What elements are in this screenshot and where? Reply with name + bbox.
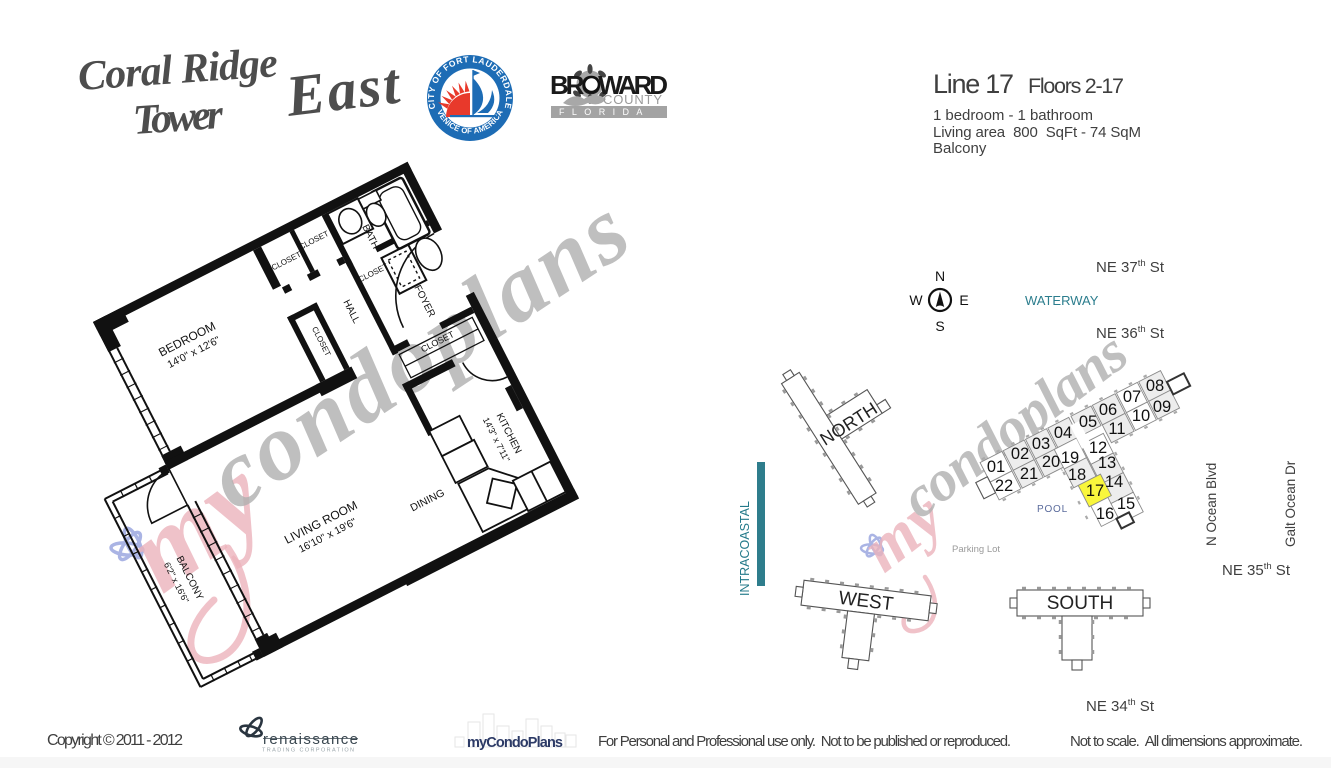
- svg-text:02: 02: [1011, 445, 1029, 463]
- svg-text:FLORIDA: FLORIDA: [559, 107, 650, 117]
- svg-text:TRADING CORPORATION: TRADING CORPORATION: [262, 748, 355, 754]
- svg-text:22: 22: [995, 477, 1013, 495]
- svg-text:myCondoPlans: myCondoPlans: [467, 735, 563, 751]
- svg-text:INTRACOASTAL: INTRACOASTAL: [738, 501, 752, 596]
- svg-text:20: 20: [1042, 453, 1060, 471]
- svg-text:07: 07: [1123, 388, 1141, 406]
- svg-text:Tower: Tower: [131, 92, 225, 144]
- svg-text:NE 34th St: NE 34th St: [1086, 697, 1155, 715]
- svg-text:1 bedroom - 1 bathroom: 1 bedroom - 1 bathroom: [933, 107, 1093, 124]
- svg-text:NE 36th St: NE 36th St: [1096, 324, 1165, 342]
- svg-text:Not to scale. All dimensions: Not to scale. All dimensions approximate…: [1070, 733, 1303, 750]
- svg-text:08: 08: [1146, 377, 1164, 395]
- svg-text:N Ocean Blvd: N Ocean Blvd: [1204, 463, 1219, 546]
- svg-text:Copyright © 2011 - 2012: Copyright © 2011 - 2012: [47, 732, 183, 749]
- svg-text:18: 18: [1068, 466, 1086, 484]
- svg-text:Living area 800 SqFt - 74 Sq: Living area 800 SqFt - 74 SqM: [933, 124, 1141, 141]
- svg-text:W: W: [909, 292, 923, 308]
- svg-text:15: 15: [1117, 495, 1135, 513]
- svg-text:03: 03: [1032, 435, 1050, 453]
- svg-text:For Personal and Professional: For Personal and Professional use only. …: [598, 733, 1011, 750]
- svg-text:09: 09: [1153, 398, 1171, 416]
- svg-text:NE 37th St: NE 37th St: [1096, 258, 1165, 276]
- svg-text:POOL: POOL: [1037, 504, 1068, 515]
- svg-text:S: S: [935, 318, 944, 334]
- svg-text:04: 04: [1054, 424, 1072, 442]
- svg-text:19: 19: [1061, 449, 1079, 467]
- svg-text:renaissance: renaissance: [263, 731, 358, 748]
- svg-text:21: 21: [1020, 465, 1038, 483]
- svg-text:WATERWAY: WATERWAY: [1025, 293, 1099, 308]
- svg-text:N: N: [935, 268, 945, 284]
- svg-text:05: 05: [1079, 413, 1097, 431]
- svg-text:Galt Ocean Dr: Galt Ocean Dr: [1283, 460, 1298, 547]
- svg-text:E: E: [959, 292, 968, 308]
- svg-text:NE 35th St: NE 35th St: [1222, 561, 1291, 579]
- svg-text:Floors 2-17: Floors 2-17: [1028, 74, 1124, 98]
- svg-text:13: 13: [1098, 454, 1116, 472]
- svg-text:Balcony: Balcony: [933, 140, 987, 157]
- svg-text:16: 16: [1096, 505, 1114, 523]
- svg-text:COUNTY: COUNTY: [603, 92, 662, 107]
- svg-text:06: 06: [1099, 401, 1117, 419]
- svg-text:Parking Lot: Parking Lot: [952, 544, 1000, 555]
- svg-text:10: 10: [1132, 407, 1150, 425]
- svg-text:SOUTH: SOUTH: [1047, 593, 1114, 614]
- svg-text:Line 17: Line 17: [933, 69, 1014, 99]
- svg-text:01: 01: [987, 458, 1005, 476]
- svg-text:17: 17: [1086, 482, 1104, 500]
- svg-text:11: 11: [1108, 420, 1125, 438]
- svg-text:14: 14: [1105, 473, 1123, 491]
